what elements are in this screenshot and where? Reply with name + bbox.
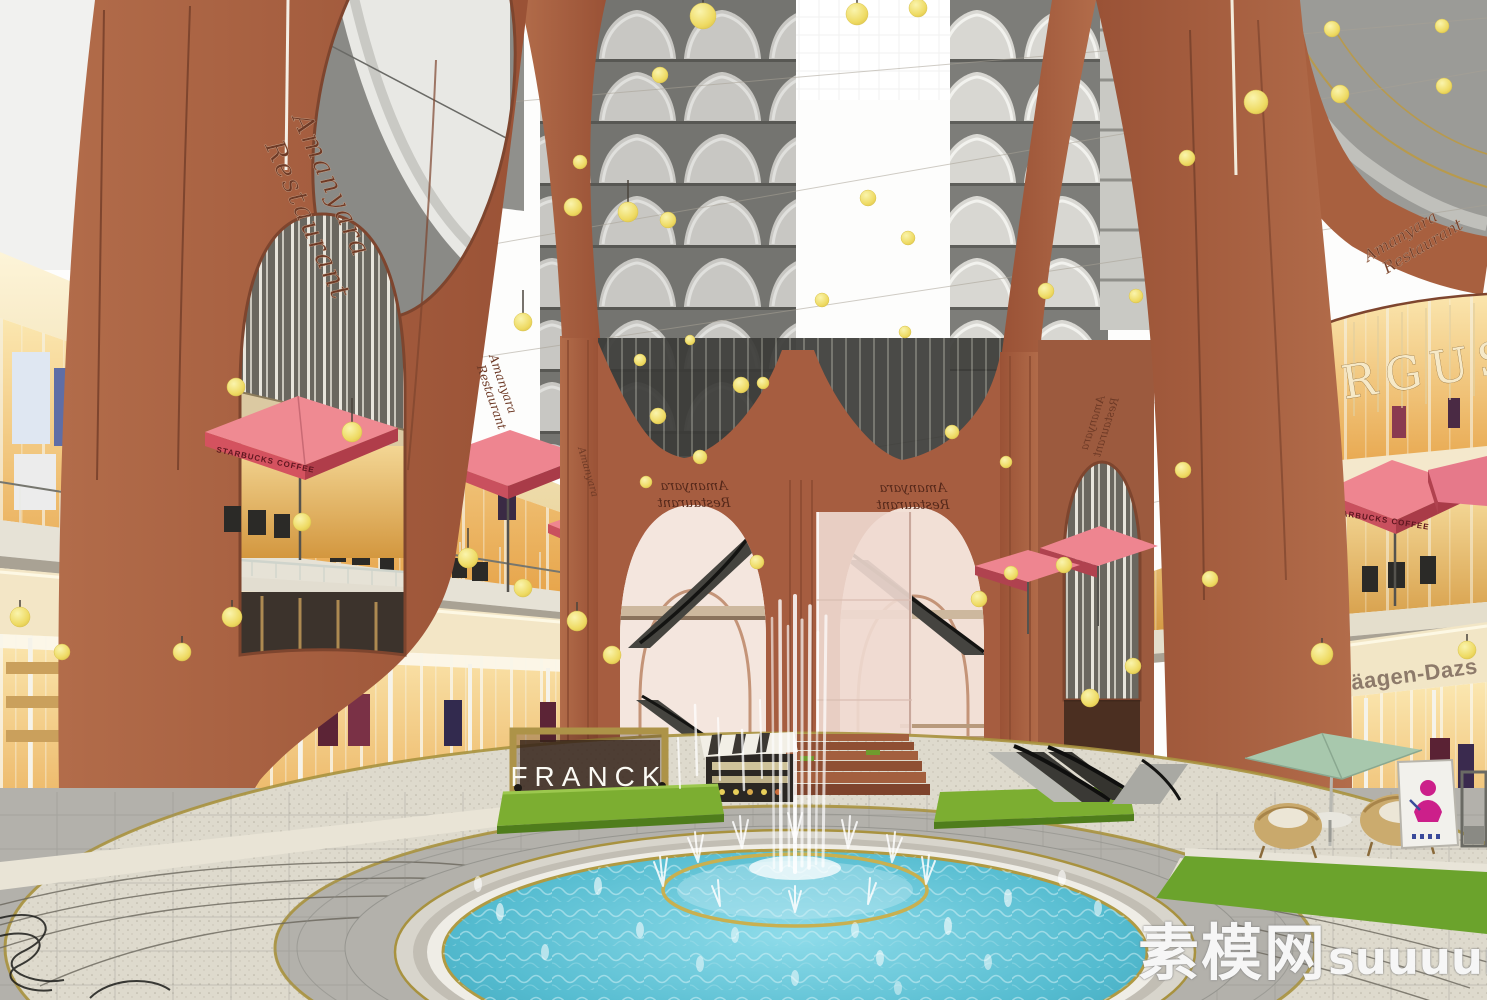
svg-text:Amanyara: Amanyara: [661, 479, 729, 494]
mall-atrium-render: FERGUSO Häagen-Dazs STARBUCKS COFFEE Häa…: [0, 0, 1487, 1000]
watermark: 素模网suuuum.com: [1138, 903, 1487, 992]
sign-figure-graphic: [1420, 780, 1436, 796]
watermark-domain: suuuum.com: [1328, 932, 1487, 985]
amphitheater-steps: [774, 734, 930, 795]
atrium-scene-svg: FERGUSO Häagen-Dazs STARBUCKS COFFEE Häa…: [0, 0, 1487, 1000]
watermark-cn: 素模网: [1138, 903, 1327, 992]
svg-text:Restaurant: Restaurant: [657, 496, 732, 511]
svg-text:Restaurant: Restaurant: [876, 498, 951, 513]
fountain-splash: [749, 856, 841, 880]
svg-text:Amanyara: Amanyara: [880, 481, 948, 496]
skylight-grid: [795, 0, 955, 100]
a-frame-sign: [1398, 760, 1458, 848]
